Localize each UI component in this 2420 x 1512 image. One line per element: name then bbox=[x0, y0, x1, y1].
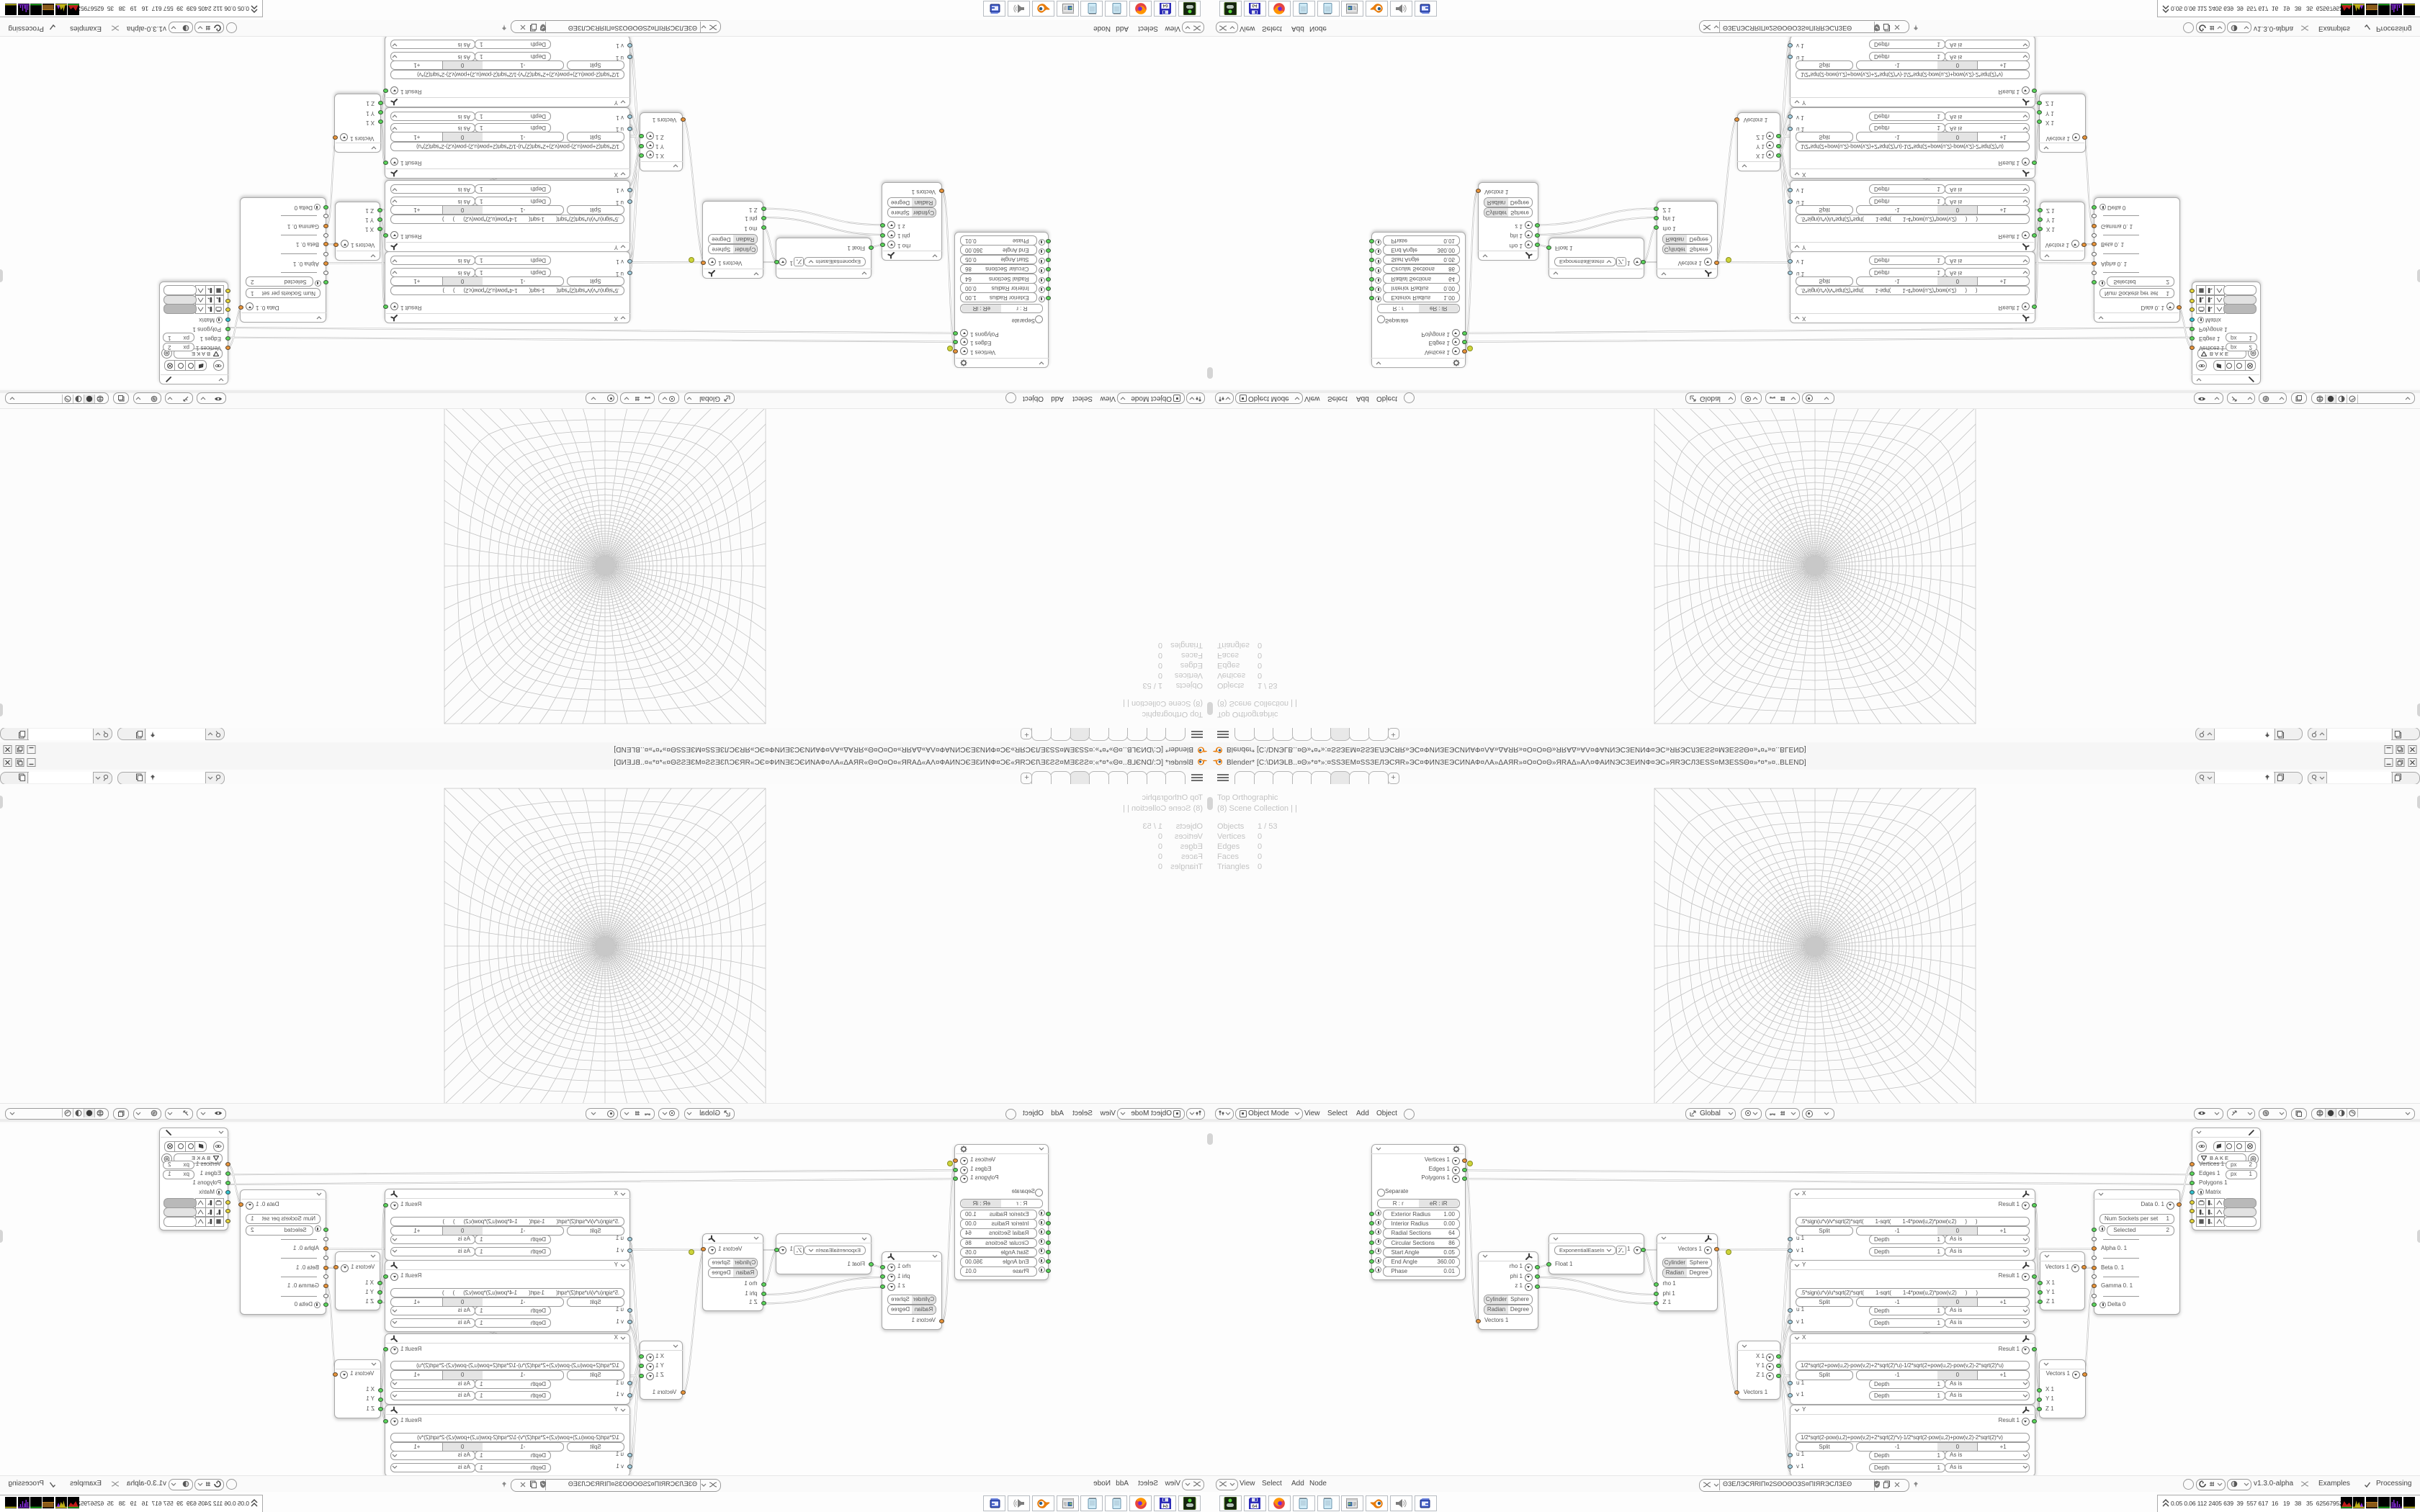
svg-text:64: 64 bbox=[1162, 1504, 1168, 1509]
svg-text:64: 64 bbox=[1252, 3, 1258, 8]
svg-text:64: 64 bbox=[1252, 1504, 1258, 1509]
svg-text:64: 64 bbox=[1162, 3, 1168, 8]
